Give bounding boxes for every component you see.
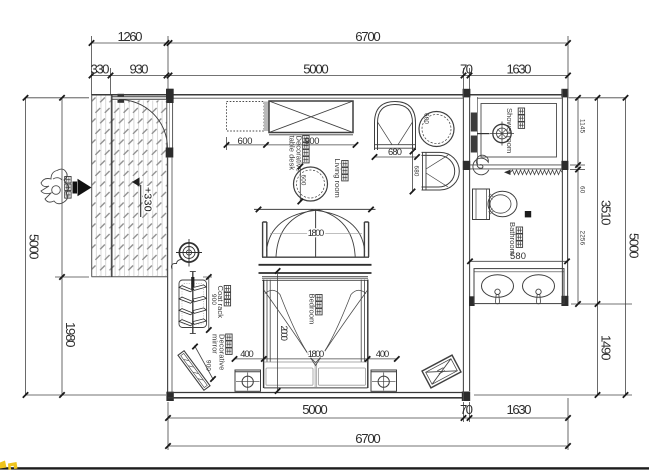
svg-text:1800: 1800: [308, 348, 325, 359]
svg-text:Bedroom: Bedroom: [308, 294, 317, 325]
svg-text:1145: 1145: [579, 119, 586, 134]
svg-text:1800: 1800: [308, 227, 325, 238]
svg-text:1490: 1490: [599, 335, 614, 361]
svg-text:1260: 1260: [118, 29, 143, 44]
svg-text:1980: 1980: [63, 322, 78, 348]
svg-text:600: 600: [300, 175, 307, 186]
svg-text:70: 70: [460, 62, 473, 77]
svg-text:Living room: Living room: [333, 159, 342, 198]
svg-text:table desk: table desk: [288, 136, 297, 171]
svg-text:5000: 5000: [303, 62, 329, 77]
svg-text:+330: +330: [142, 187, 154, 212]
svg-text:900: 900: [210, 294, 217, 305]
svg-text:3510: 3510: [599, 200, 614, 226]
svg-text:1630: 1630: [507, 62, 532, 77]
svg-text:330: 330: [91, 62, 110, 77]
svg-text:2000: 2000: [279, 326, 290, 342]
svg-text:580: 580: [510, 250, 526, 261]
svg-text:900: 900: [205, 360, 212, 371]
svg-text:680: 680: [413, 166, 420, 177]
svg-text:5000: 5000: [302, 402, 328, 417]
svg-text:600: 600: [423, 113, 430, 124]
svg-text:60: 60: [579, 186, 586, 194]
svg-text:2256: 2256: [579, 231, 586, 246]
svg-text:70: 70: [460, 402, 473, 417]
svg-text:5000: 5000: [27, 234, 42, 260]
svg-text:6700: 6700: [355, 29, 381, 44]
svg-text:930: 930: [130, 62, 149, 77]
svg-text:Coat rack: Coat rack: [216, 286, 225, 319]
svg-text:5000: 5000: [627, 233, 642, 259]
svg-text:680: 680: [388, 146, 402, 157]
svg-text:400: 400: [240, 348, 254, 359]
svg-text:1630: 1630: [507, 402, 532, 417]
svg-text:6700: 6700: [355, 431, 381, 446]
svg-text:Shower room: Shower room: [505, 108, 514, 153]
svg-text:mirror: mirror: [211, 334, 220, 354]
svg-text:600: 600: [238, 135, 253, 146]
svg-text:400: 400: [376, 348, 390, 359]
